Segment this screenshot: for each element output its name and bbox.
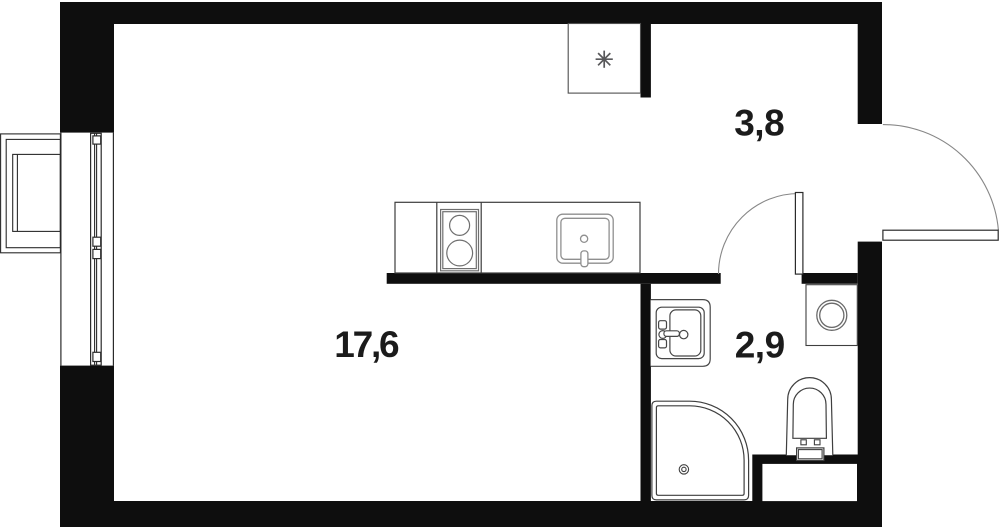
svg-text:3,8: 3,8 [734, 102, 784, 143]
svg-text:2,9: 2,9 [735, 325, 785, 366]
svg-text:17,6: 17,6 [334, 324, 399, 365]
